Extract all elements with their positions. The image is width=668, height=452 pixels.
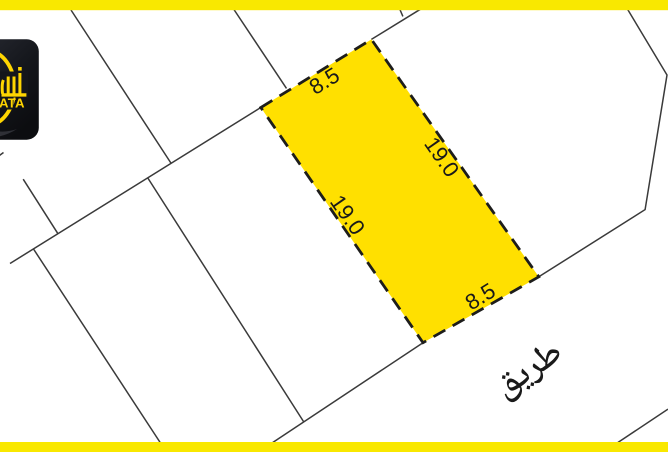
svg-text:ATA: ATA	[0, 96, 25, 111]
